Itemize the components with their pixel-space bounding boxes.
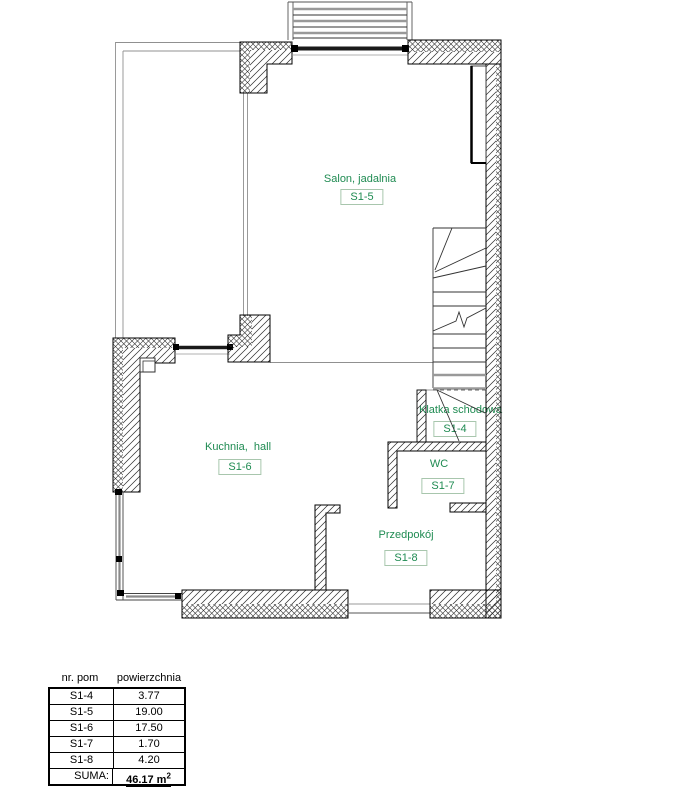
area-value-cell: 1.70 (114, 737, 184, 752)
wall-right (486, 40, 501, 618)
wall-hallway-left (315, 505, 340, 590)
room-code-wc: S1-7 (421, 478, 464, 494)
chimney (471, 66, 486, 163)
room-label-wc: WC (430, 458, 448, 470)
area-value-cell: 17.50 (114, 721, 184, 736)
total-label: SUMA: (50, 769, 113, 784)
window-corner-left (115, 489, 182, 600)
area-value-cell: 4.20 (114, 753, 184, 768)
room-number-cell: S1-8 (50, 753, 114, 768)
room-number-cell: S1-4 (50, 689, 114, 704)
wall-top-left (240, 42, 292, 93)
room-label-przedpokoj: Przedpokój (378, 529, 433, 541)
entrance-steps (288, 2, 412, 40)
wall-top-right (408, 40, 501, 64)
room-code-kuchnia: S1-6 (218, 459, 261, 475)
table-row: S1-8 4.20 (50, 752, 184, 768)
window-mid (173, 344, 233, 354)
area-table-box: S1-4 3.77 S1-5 19.00 S1-6 17.50 S1-7 1.7… (48, 687, 186, 786)
wall-bottom-left (182, 590, 348, 618)
staircase (433, 228, 486, 441)
wall-mid-corner (228, 315, 270, 362)
table-row: S1-4 3.77 (50, 689, 184, 704)
room-label-kuchnia: Kuchnia, hall (205, 441, 271, 453)
area-value-cell: 19.00 (114, 705, 184, 720)
area-table: nr. pom powierzchnia S1-4 3.77 S1-5 19.0… (48, 671, 186, 786)
entrance-door (291, 45, 409, 55)
room-label-salon: Salon, jadalnia (324, 173, 396, 185)
door-bottom (348, 604, 430, 613)
table-row: S1-5 19.00 (50, 704, 184, 720)
wall-stairwell (417, 390, 426, 442)
table-row: S1-6 17.50 (50, 720, 184, 736)
area-table-header-area: powierzchnia (112, 671, 186, 685)
room-number-cell: S1-7 (50, 737, 114, 752)
wall-wc (388, 442, 486, 512)
room-number-cell: S1-6 (50, 721, 114, 736)
floor-plan-page: Salon, jadalnia S1-5 Kuchnia, hall S1-6 … (0, 0, 686, 793)
room-code-przedpokoj: S1-8 (384, 550, 427, 566)
room-number-cell: S1-5 (50, 705, 114, 720)
pilaster-detail (140, 358, 155, 372)
area-table-header: nr. pom powierzchnia (48, 671, 186, 685)
table-row-total: SUMA: 46.17 m2 (50, 768, 184, 784)
area-value-cell: 3.77 (114, 689, 184, 704)
area-table-header-room: nr. pom (48, 671, 112, 685)
wall-bottom-right (430, 590, 501, 618)
total-value: 46.17 m2 (113, 769, 184, 784)
room-code-salon: S1-5 (340, 189, 383, 205)
table-row: S1-7 1.70 (50, 736, 184, 752)
